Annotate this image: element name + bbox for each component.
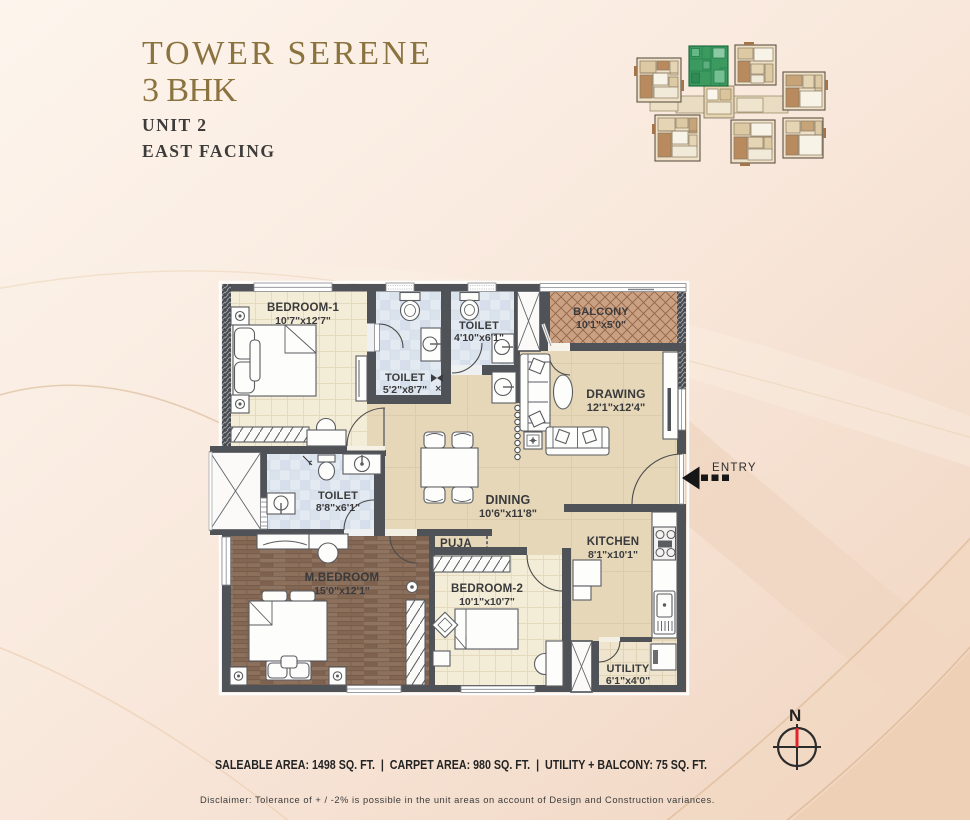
svg-text:10'6"x11'8": 10'6"x11'8" xyxy=(479,508,537,520)
svg-text:8'8"x6'1": 8'8"x6'1" xyxy=(316,502,360,514)
svg-text:BEDROOM-1: BEDROOM-1 xyxy=(267,302,339,314)
svg-text:M.BEDROOM: M.BEDROOM xyxy=(305,572,380,584)
svg-text:UTILITY: UTILITY xyxy=(607,663,650,675)
svg-text:8'1"x10'1": 8'1"x10'1" xyxy=(588,549,638,561)
svg-text:4'10"x6'1": 4'10"x6'1" xyxy=(454,332,504,344)
svg-text:6'1"x4'0": 6'1"x4'0" xyxy=(606,675,650,687)
svg-text:ENTRY: ENTRY xyxy=(712,462,757,474)
svg-text:DINING: DINING xyxy=(486,493,531,507)
svg-text:10'7"x12'7": 10'7"x12'7" xyxy=(275,315,331,327)
svg-text:SALEABLE AREA: 1498 SQ. FT. |: SALEABLE AREA: 1498 SQ. FT. | CARPET ARE… xyxy=(215,757,707,772)
svg-text:3 BHK: 3 BHK xyxy=(142,72,237,109)
svg-text:Disclaimer: Tolerance of + / -: Disclaimer: Tolerance of + / -2% is poss… xyxy=(200,795,715,805)
svg-text:TOILET: TOILET xyxy=(385,372,425,384)
svg-text:TOILET: TOILET xyxy=(318,490,358,502)
svg-text:N: N xyxy=(789,706,801,725)
svg-text:10'1"x10'7": 10'1"x10'7" xyxy=(459,596,515,608)
svg-text:EAST FACING: EAST FACING xyxy=(142,141,274,161)
svg-text:TOILET: TOILET xyxy=(459,320,499,332)
svg-text:DRAWING: DRAWING xyxy=(586,387,645,401)
svg-text:UNIT 2: UNIT 2 xyxy=(142,115,206,135)
svg-text:KITCHEN: KITCHEN xyxy=(587,536,640,548)
svg-text:PUJA: PUJA xyxy=(440,538,472,550)
svg-text:10'1"x5'0": 10'1"x5'0" xyxy=(576,319,626,331)
svg-text:5'2"x8'7": 5'2"x8'7" xyxy=(383,384,427,396)
svg-text:12'1"x12'4": 12'1"x12'4" xyxy=(587,402,646,414)
svg-text:15'0"x12'1": 15'0"x12'1" xyxy=(314,585,370,597)
svg-text:BALCONY: BALCONY xyxy=(573,306,629,318)
svg-text:BEDROOM-2: BEDROOM-2 xyxy=(451,583,523,595)
